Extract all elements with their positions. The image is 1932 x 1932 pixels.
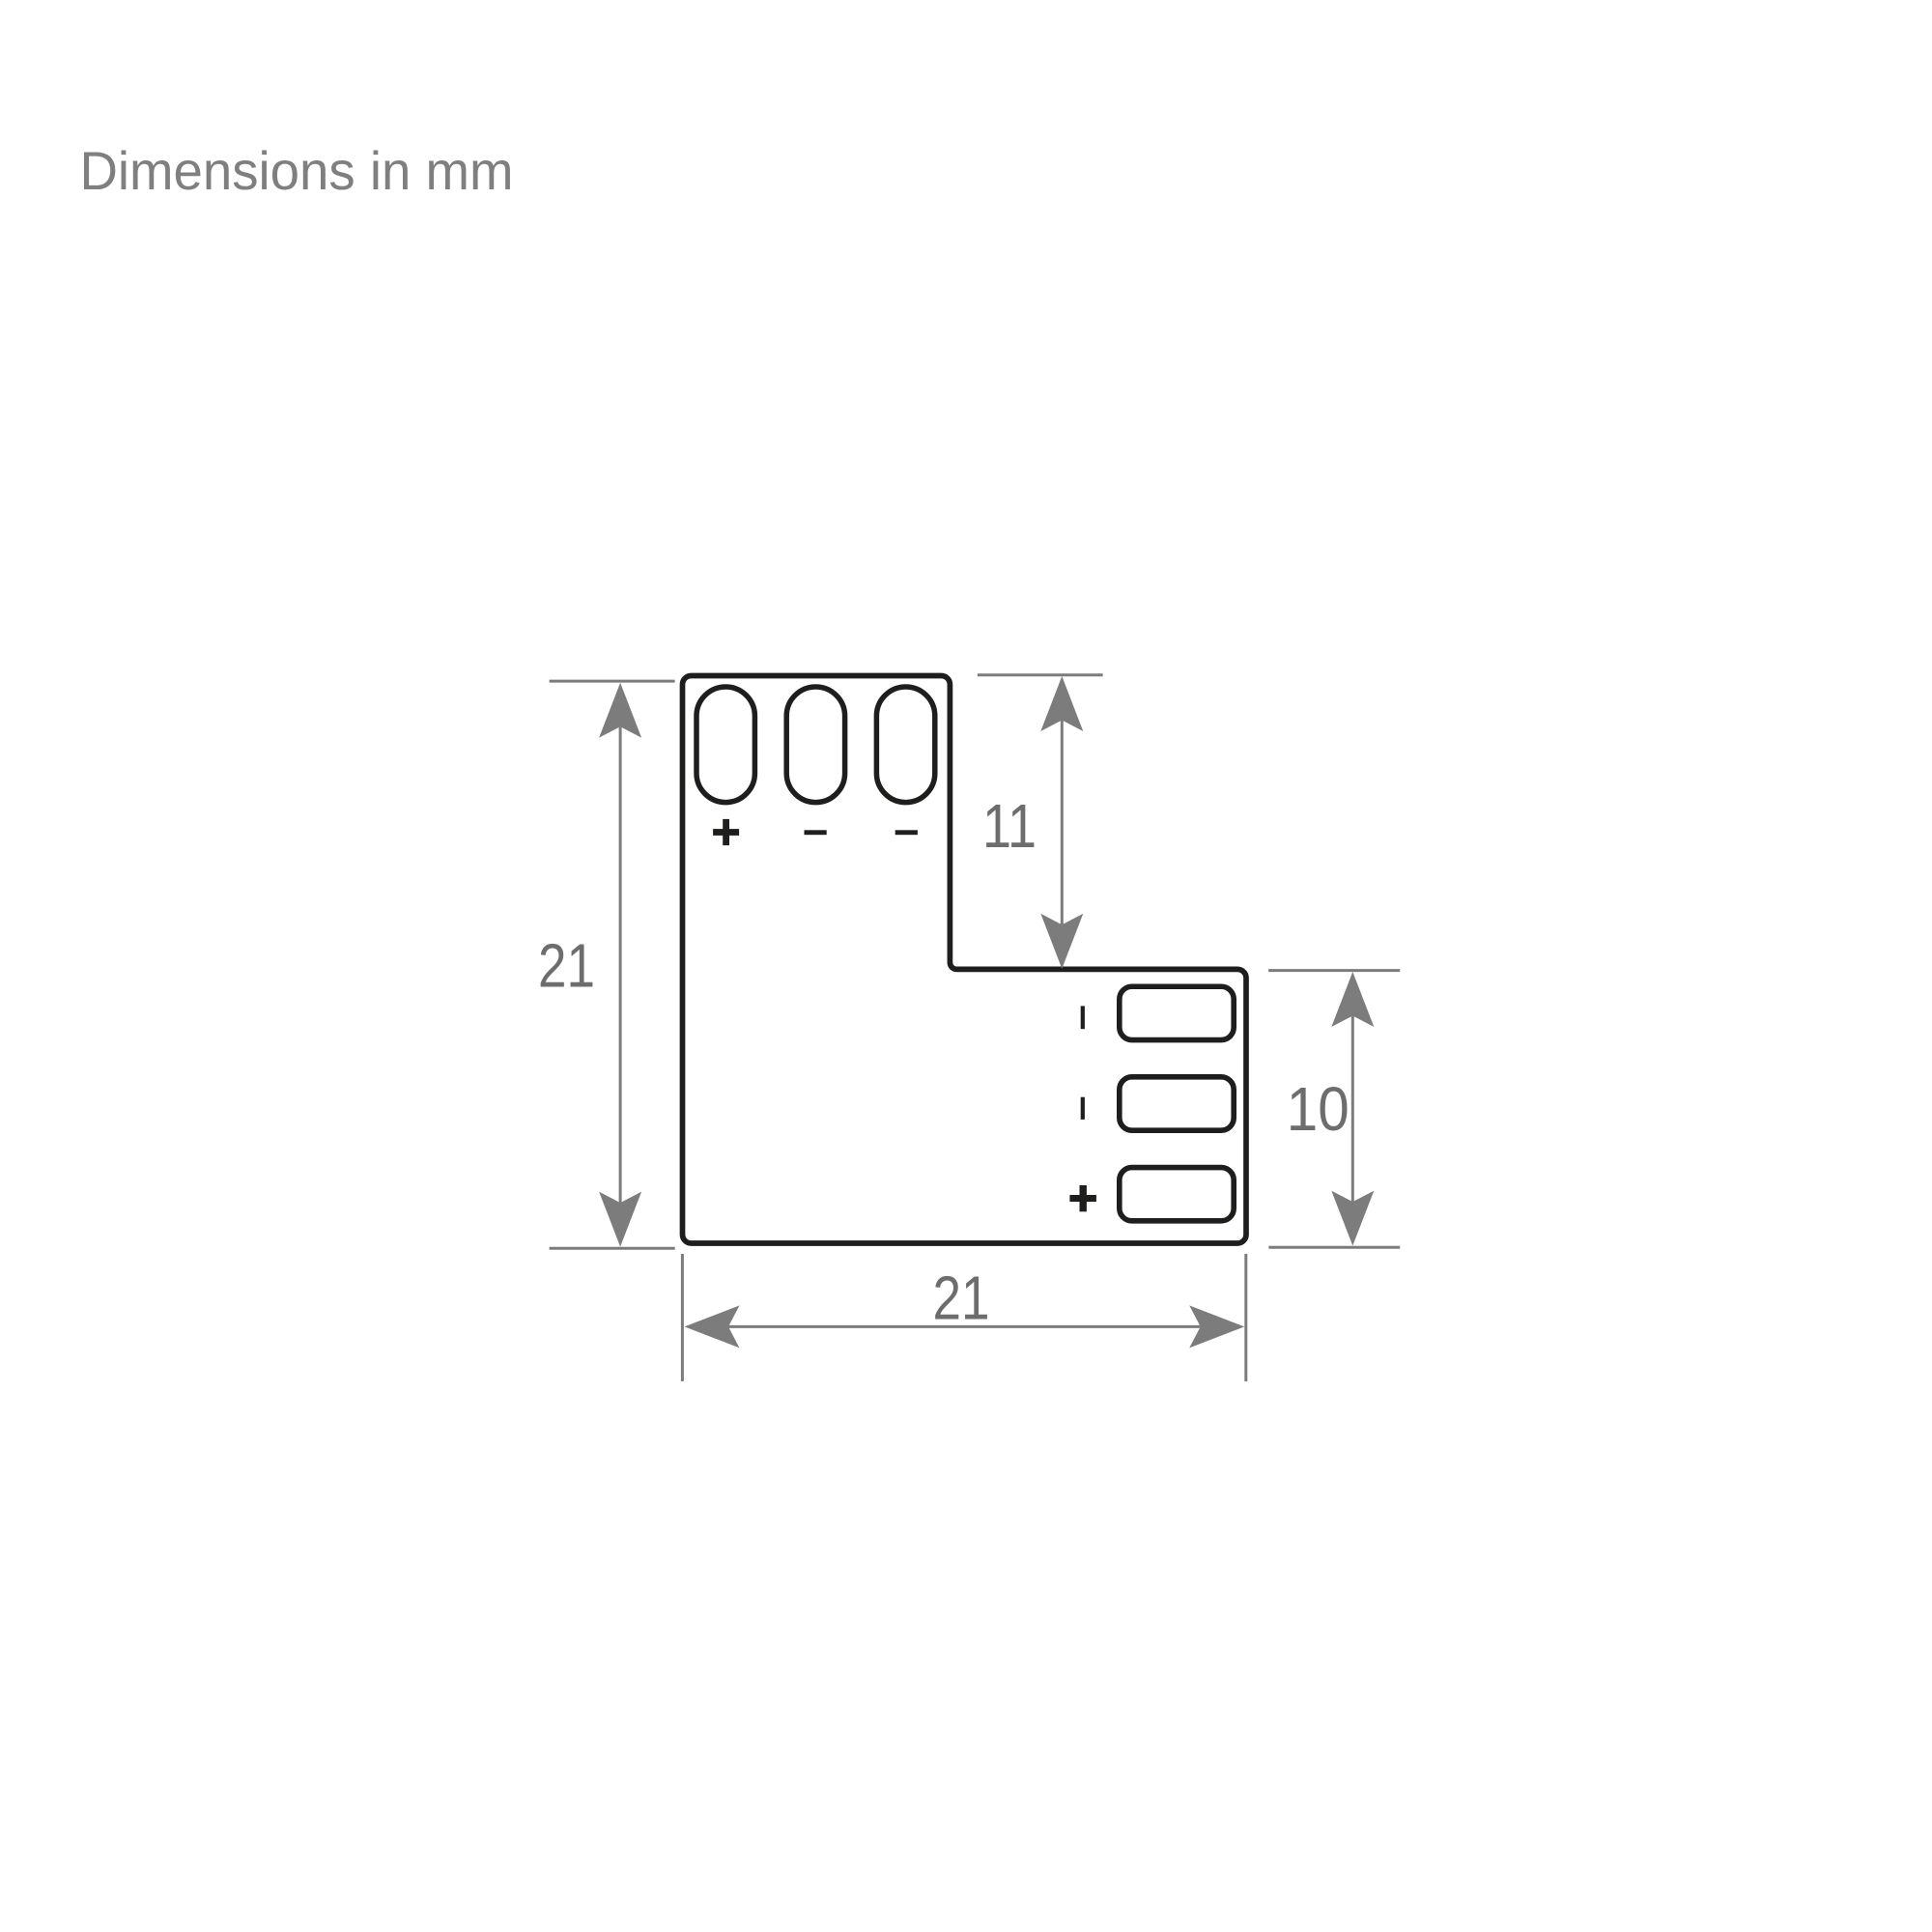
svg-text:10: 10 <box>1287 1074 1350 1144</box>
svg-text:11: 11 <box>982 791 1037 861</box>
svg-text:21: 21 <box>538 930 595 1000</box>
svg-text:Dimensions in mm: Dimensions in mm <box>80 140 514 201</box>
svg-text:21: 21 <box>933 1264 990 1333</box>
